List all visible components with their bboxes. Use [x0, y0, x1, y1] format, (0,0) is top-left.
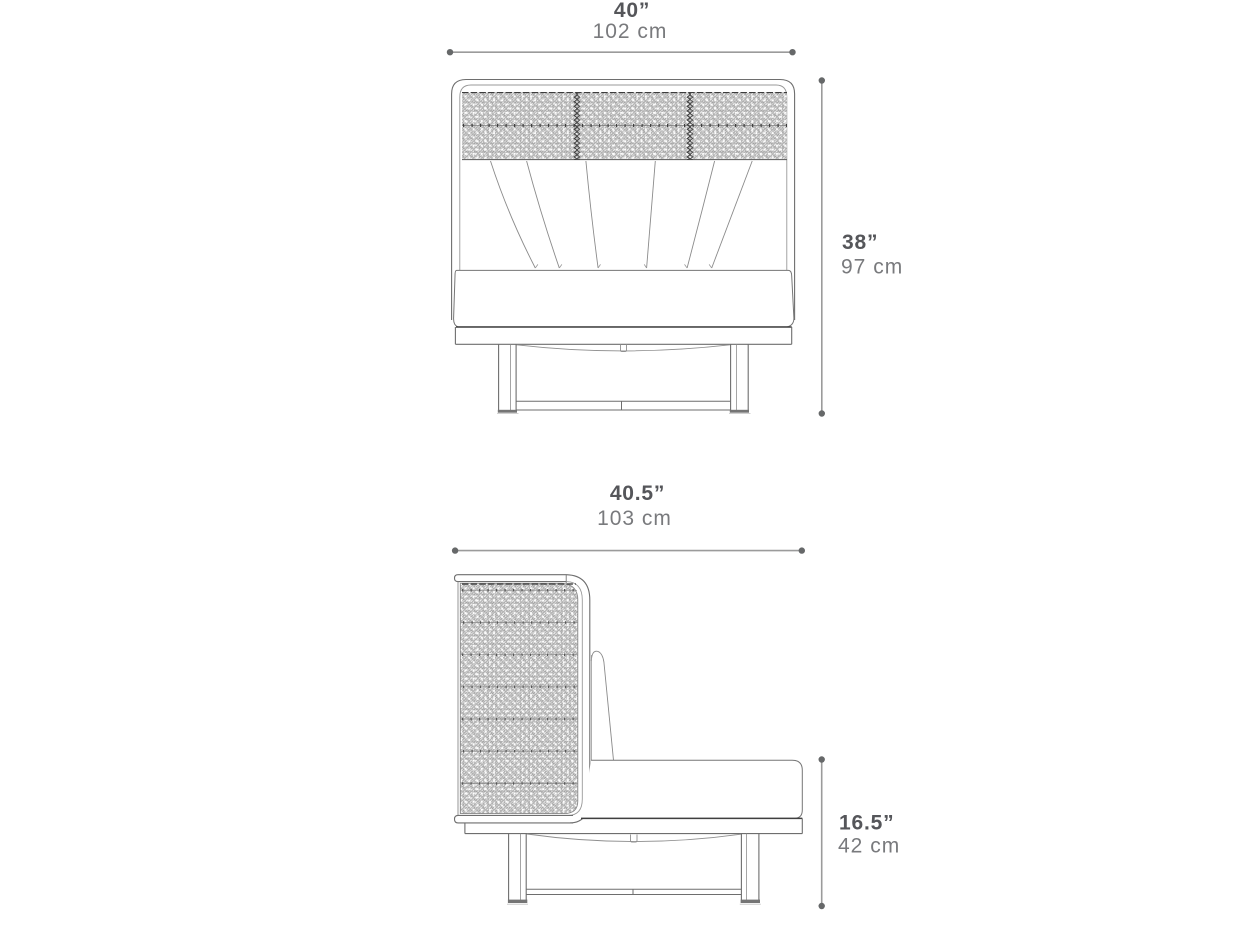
svg-text:102 cm: 102 cm: [593, 20, 668, 43]
svg-text:103 cm: 103 cm: [597, 507, 672, 530]
svg-text:42 cm: 42 cm: [838, 835, 900, 858]
svg-text:40.5”: 40.5”: [610, 482, 665, 505]
svg-text:16.5”: 16.5”: [839, 812, 894, 835]
svg-text:38”: 38”: [842, 231, 878, 254]
svg-text:97 cm: 97 cm: [841, 256, 903, 279]
svg-text:40”: 40”: [614, 0, 650, 22]
